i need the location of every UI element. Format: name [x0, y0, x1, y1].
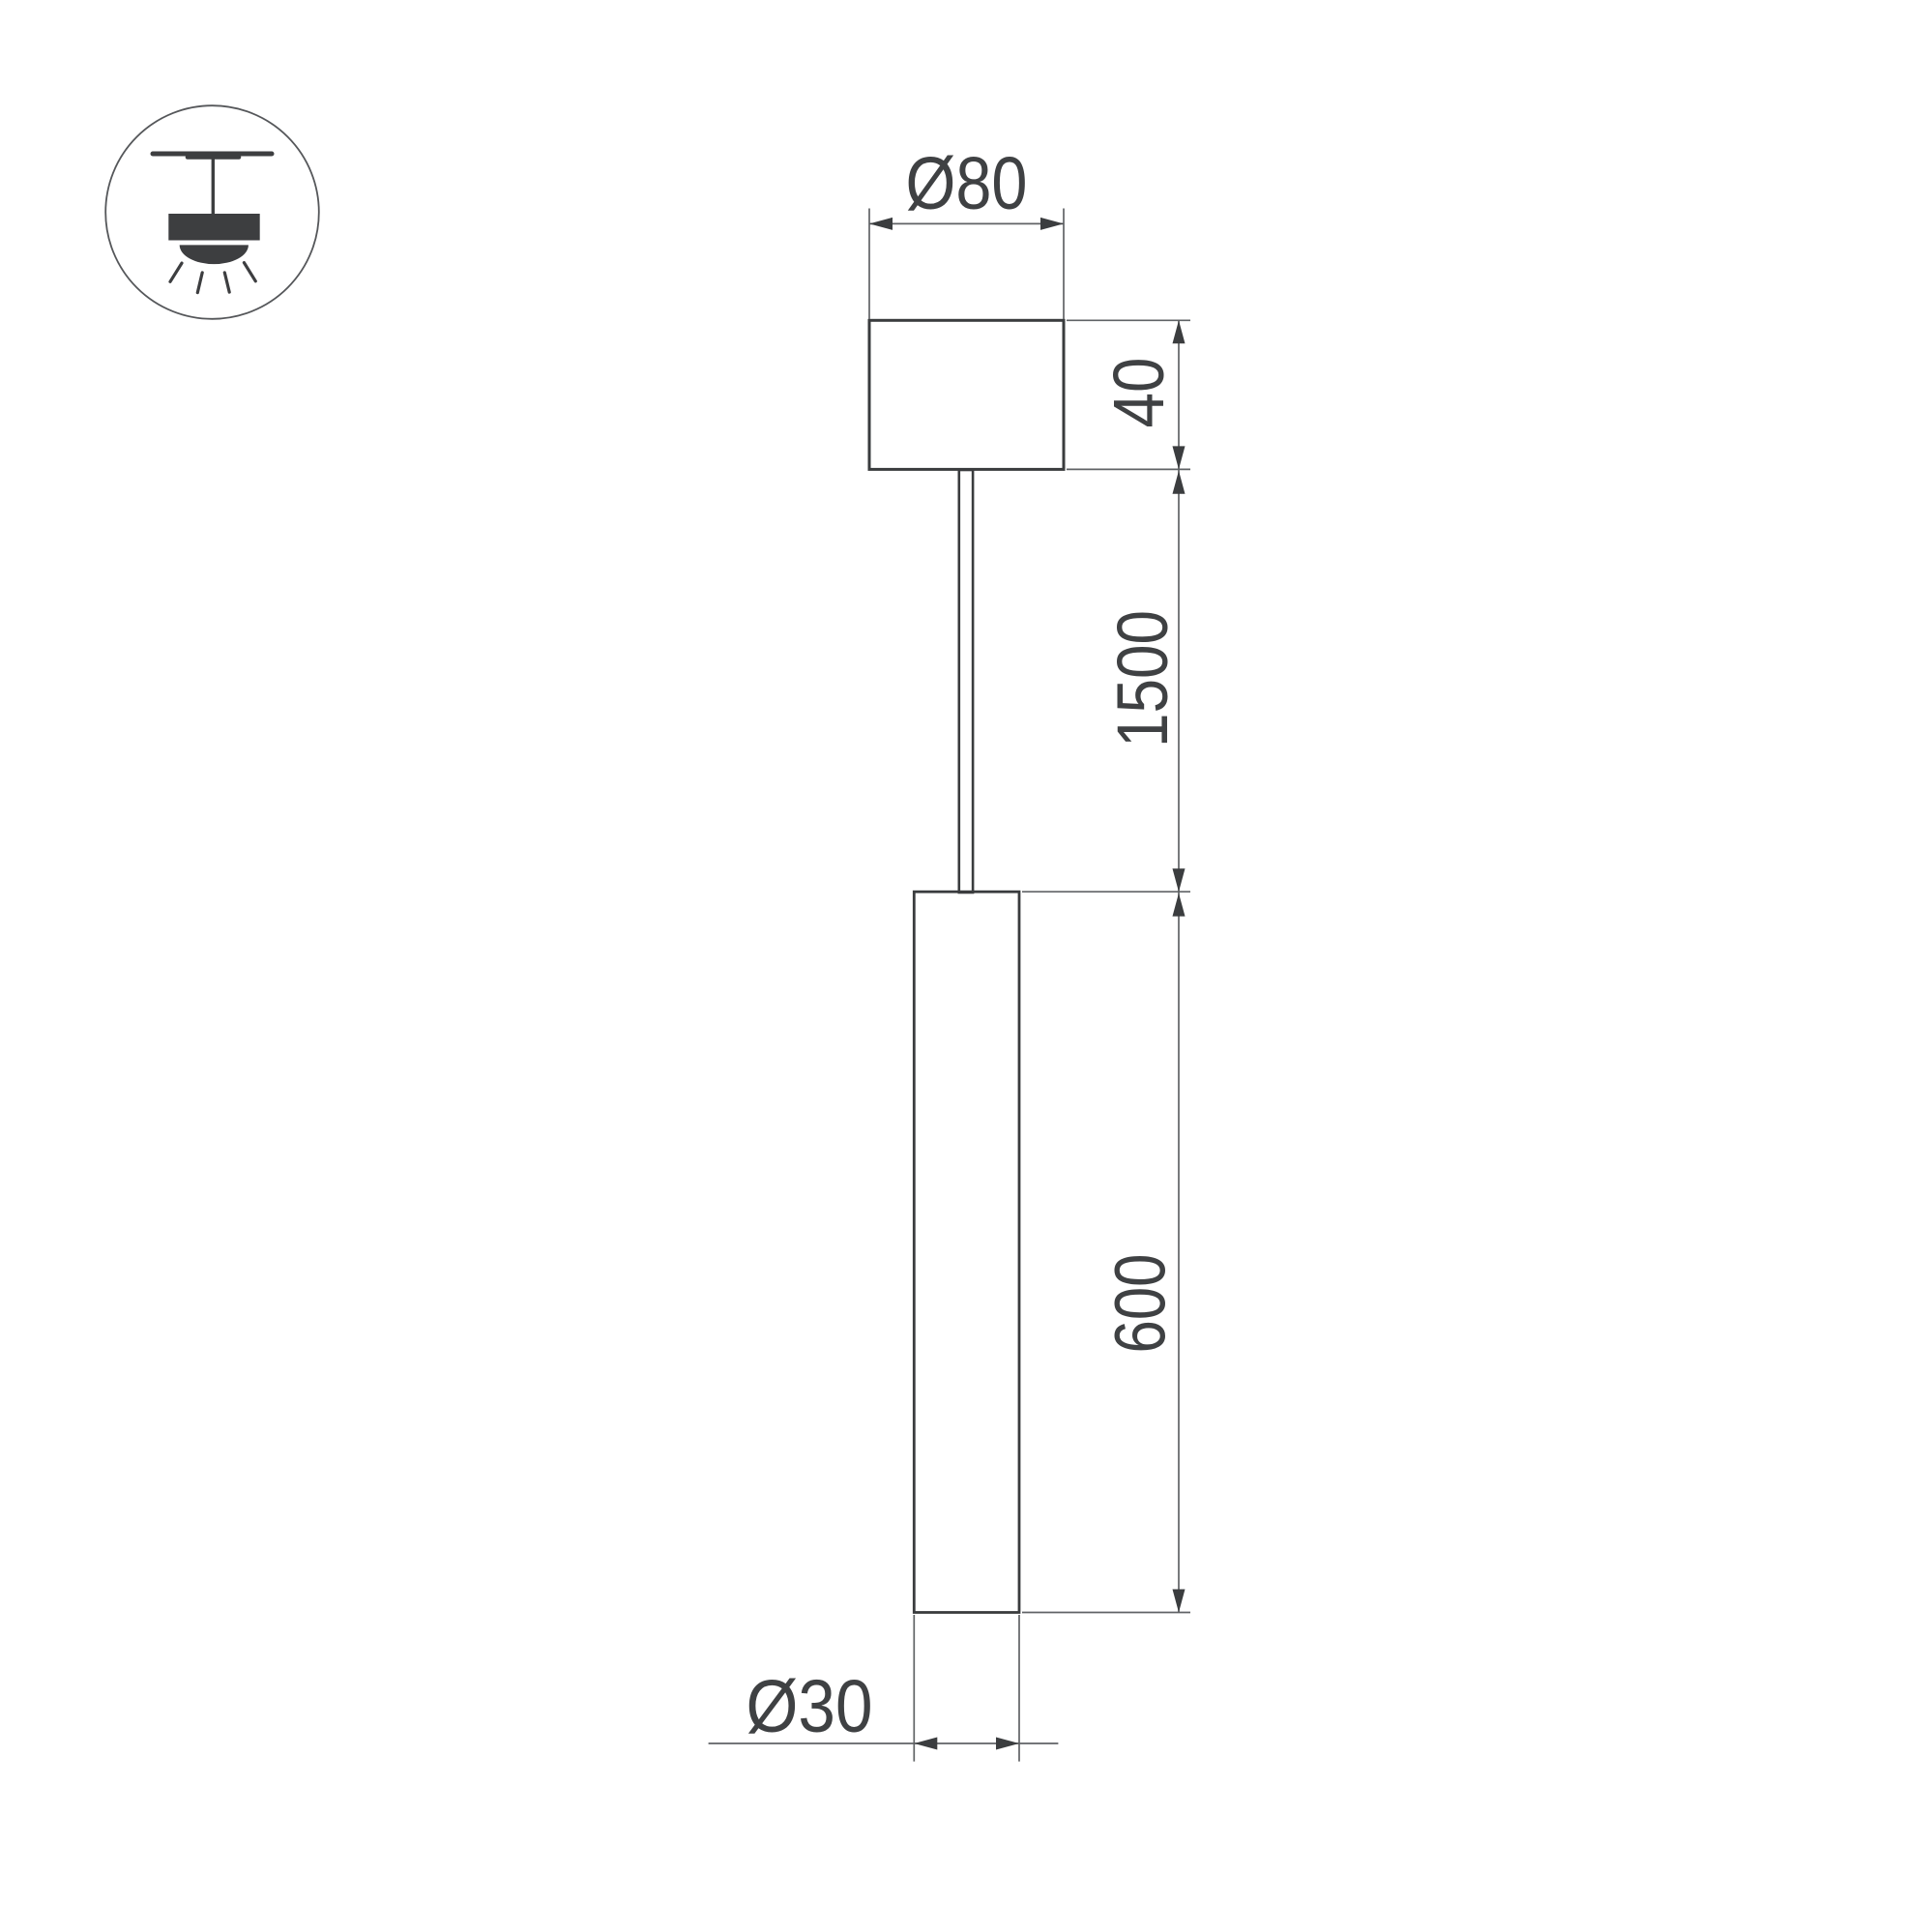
svg-text:1500: 1500: [1102, 610, 1183, 747]
svg-text:600: 600: [1100, 1254, 1181, 1354]
svg-text:40: 40: [1098, 358, 1179, 428]
svg-text:Ø80: Ø80: [906, 142, 1028, 225]
svg-text:Ø30: Ø30: [746, 1665, 873, 1748]
